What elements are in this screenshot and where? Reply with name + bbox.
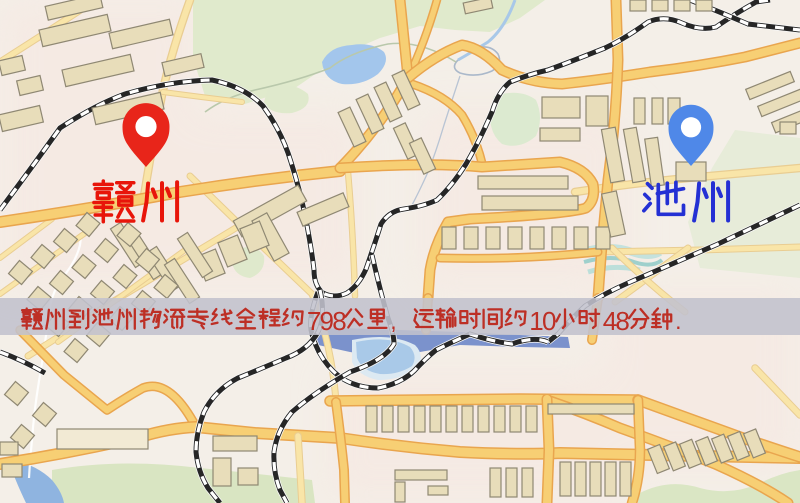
svg-text:798: 798 bbox=[307, 306, 346, 336]
svg-text:,: , bbox=[390, 308, 396, 334]
svg-text:.: . bbox=[675, 308, 681, 334]
svg-text:48: 48 bbox=[603, 306, 630, 336]
svg-text:10: 10 bbox=[529, 306, 556, 336]
